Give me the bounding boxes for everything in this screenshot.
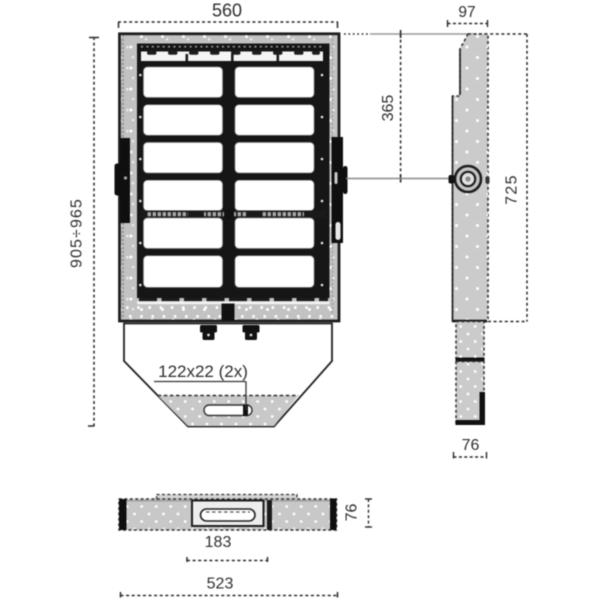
svg-text:365: 365	[380, 95, 397, 122]
svg-text:725: 725	[504, 174, 521, 205]
svg-text:122x22 (2x): 122x22 (2x)	[158, 362, 248, 381]
svg-text:523: 523	[207, 576, 234, 593]
svg-text:76: 76	[344, 504, 361, 522]
svg-text:183: 183	[205, 534, 232, 551]
svg-text:560: 560	[212, 1, 242, 21]
svg-text:905÷965: 905÷965	[69, 198, 86, 268]
svg-text:97: 97	[458, 4, 475, 21]
svg-text:76: 76	[462, 437, 480, 454]
